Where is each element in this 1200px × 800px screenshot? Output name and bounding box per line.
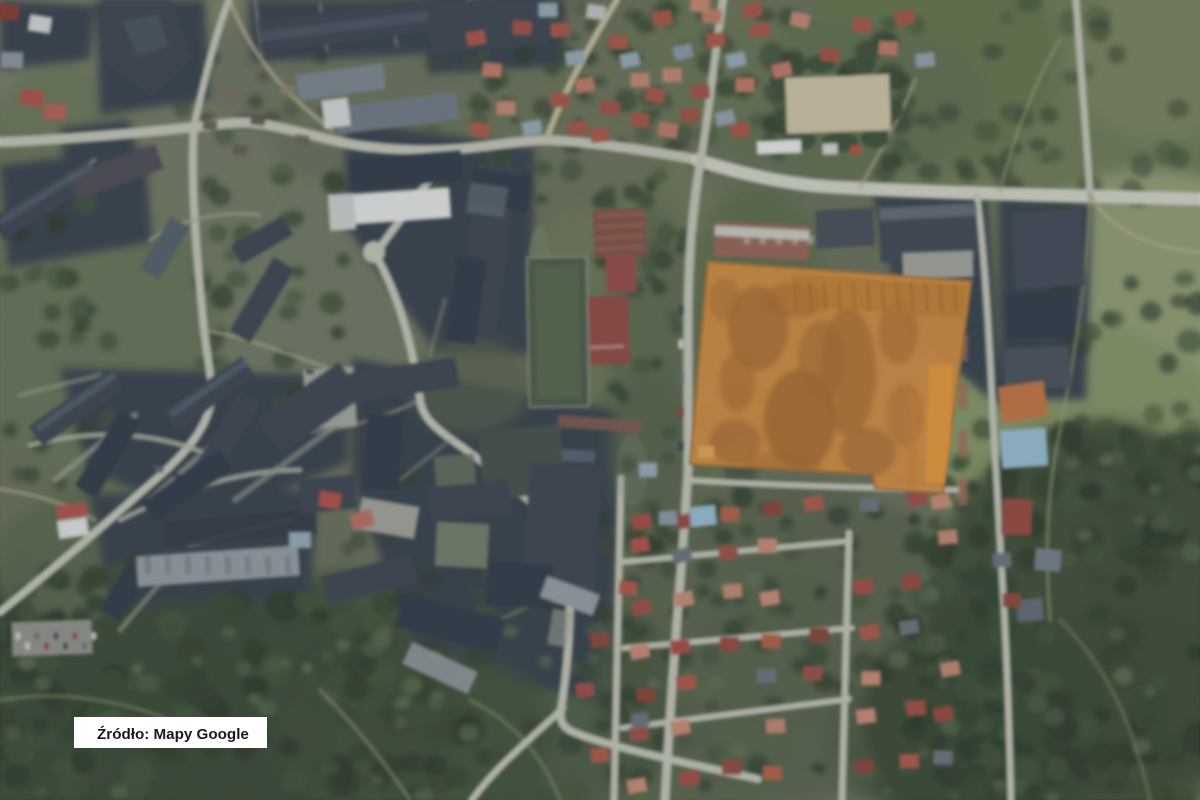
svg-text:Źródło: Mapy Google: Źródło: Mapy Google <box>97 726 249 743</box>
